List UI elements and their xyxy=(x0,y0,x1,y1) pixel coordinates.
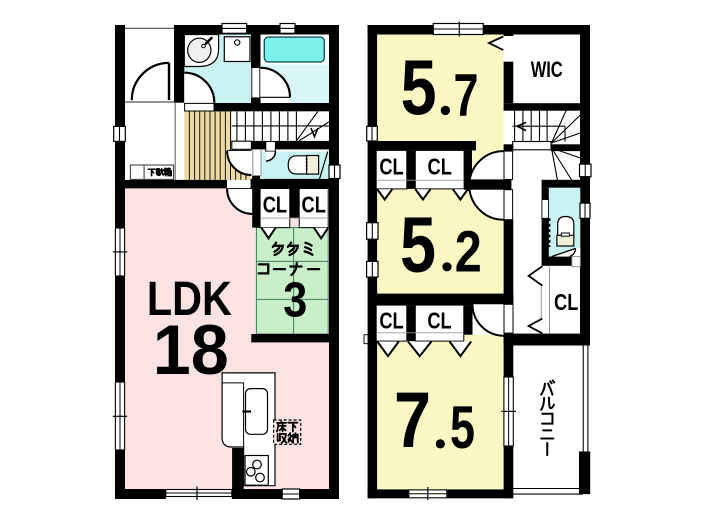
svg-text:CL: CL xyxy=(302,191,326,217)
svg-text:CL: CL xyxy=(379,154,403,180)
svg-text:CL: CL xyxy=(379,307,403,333)
svg-text:7: 7 xyxy=(394,375,431,464)
svg-text:7: 7 xyxy=(454,61,479,128)
svg-text:5: 5 xyxy=(400,199,436,288)
svg-text:5: 5 xyxy=(401,43,437,131)
svg-text:WIC: WIC xyxy=(531,57,563,82)
svg-text:2: 2 xyxy=(455,219,482,284)
svg-text:CL: CL xyxy=(427,307,451,333)
svg-text:18: 18 xyxy=(153,310,229,389)
svg-text:CL: CL xyxy=(263,191,287,217)
svg-text:3: 3 xyxy=(283,272,307,327)
svg-text:CL: CL xyxy=(554,289,578,315)
svg-text:CL: CL xyxy=(428,154,452,180)
svg-text:5: 5 xyxy=(450,394,475,461)
